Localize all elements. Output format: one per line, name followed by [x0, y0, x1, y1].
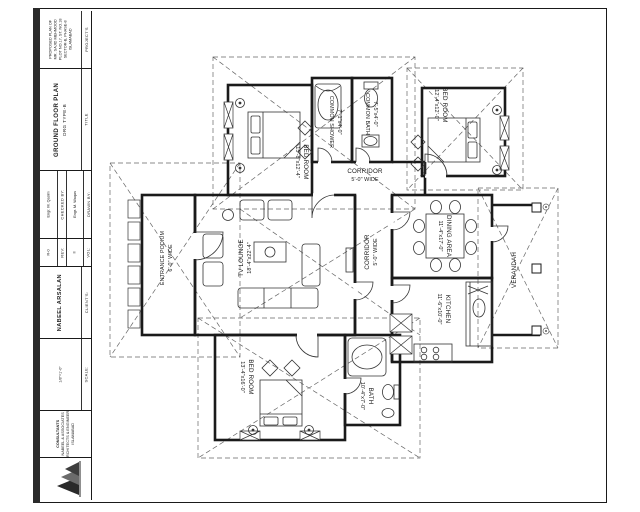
sink-basin	[382, 409, 394, 418]
room-label-entrance: ENTRANCE PODIUM	[160, 230, 166, 285]
pouf	[223, 210, 234, 221]
room-label-common-shower: COMMON SHOWER	[328, 96, 334, 148]
room-dims-corridor-mid: 5'-0" WIDE	[373, 238, 379, 266]
burner	[433, 347, 439, 353]
side-table-dot	[252, 429, 254, 431]
room-dims-tv-lounge: 18'-4"x22'-4"	[247, 242, 253, 273]
side-table-dot	[239, 167, 241, 169]
room-label-common-bath: COMMON BATH	[364, 93, 370, 135]
pillow	[468, 142, 477, 158]
door-common-shower	[318, 148, 332, 162]
sink-basin	[364, 137, 377, 146]
column	[532, 326, 541, 335]
chair	[450, 201, 461, 214]
shower-tray	[348, 338, 386, 376]
wc-bowl	[383, 385, 394, 400]
wall-tv-lounge	[195, 195, 355, 335]
room-dims-bath-bottom: 10'-4"x7'-0"	[359, 382, 365, 410]
door-entrance-main	[195, 232, 223, 260]
verandah-columns	[532, 203, 541, 335]
step	[128, 266, 140, 284]
room-dims-entrance: 6'-0" WIDE	[168, 244, 174, 272]
step	[128, 310, 140, 328]
decor-diamond-icon	[262, 360, 278, 376]
chair	[414, 220, 425, 233]
armchair	[240, 200, 264, 220]
armchair	[203, 262, 223, 286]
room-label-kitchen: KITCHEN	[444, 295, 451, 324]
sofa-corner	[302, 244, 320, 286]
wc-tank	[364, 82, 378, 89]
room-dims-corridor-top: 5'-0" WIDE	[351, 177, 379, 183]
room-dims-common-bath: 7'-5"x4'-0"	[372, 101, 378, 126]
pillow	[468, 122, 477, 138]
wall-corridor-mid	[355, 195, 392, 362]
step	[128, 200, 140, 218]
window-icon	[300, 431, 320, 440]
bed-detail	[260, 380, 302, 414]
roof-outline-top-left	[213, 57, 415, 209]
chair	[466, 220, 477, 233]
door-common-bath	[356, 148, 370, 162]
bed	[248, 112, 300, 158]
wall-common-bath	[352, 78, 392, 162]
door-dining	[392, 212, 410, 230]
floor-plan-svg: BED ROOM 15'-8"x12'-4" COMMON SHOWER 7'-…	[0, 0, 640, 512]
roof-corner-dot	[545, 330, 546, 331]
door-corridor-mid	[355, 282, 373, 300]
sofa	[238, 288, 318, 308]
armchair	[203, 234, 223, 258]
side-table-dot	[308, 429, 310, 431]
furniture-kitchen	[414, 282, 492, 362]
chair	[414, 242, 425, 255]
side-table-dot	[496, 169, 498, 171]
furniture-bed-top-right	[411, 106, 502, 175]
wc-tank	[394, 385, 399, 399]
bath-tub	[352, 345, 382, 369]
room-label-bed-top-right: BED ROOM	[441, 87, 448, 122]
column	[532, 264, 541, 273]
furniture-bed-bottom	[249, 360, 314, 435]
wall-bed-room-bottom	[215, 335, 345, 440]
pillow	[251, 116, 260, 133]
kitchen-sink	[473, 299, 485, 317]
room-dims-common-shower: 7'-1"x4'-0"	[336, 109, 342, 134]
step	[128, 222, 140, 240]
dining-table	[426, 214, 464, 258]
window-icon	[224, 102, 233, 128]
window-icon	[390, 336, 412, 354]
side-table-dot	[496, 109, 498, 111]
burner	[421, 347, 427, 353]
door-lounge-corridor	[312, 195, 335, 218]
room-label-tv-lounge: TV LOUNGE	[238, 239, 245, 277]
side-table-dot	[239, 102, 241, 104]
room-label-corridor-mid: CORRIDOR	[364, 234, 371, 270]
bed	[260, 380, 302, 426]
door-verandah	[492, 226, 508, 242]
furniture-dining	[414, 201, 477, 272]
chair	[450, 259, 461, 272]
room-label-bath-bottom: BATH	[367, 388, 374, 405]
step	[128, 288, 140, 306]
room-dims-bed-top-right: 12'-4"x12'-0"	[433, 89, 439, 120]
roof-corner-dot	[545, 206, 546, 207]
room-dims-bed-top-left: 15'-8"x12'-4"	[294, 146, 300, 177]
coffee-table	[254, 242, 286, 262]
room-label-bed-top-left: BED ROOM	[302, 144, 309, 179]
entrance-steps	[128, 200, 140, 328]
room-dims-dining: 11'-4"x17'-0"	[437, 220, 443, 251]
column	[532, 203, 541, 212]
pillow	[283, 417, 297, 425]
door-bed-room-bottom	[296, 335, 318, 357]
door-bath-bottom	[345, 378, 361, 394]
window-icon	[500, 116, 509, 140]
room-label-corridor-top: CORRIDOR	[347, 168, 383, 175]
roof-outline-verandah	[478, 188, 558, 348]
room-dims-kitchen: 11'-6"x10'-0"	[436, 293, 442, 324]
shower-tub	[318, 90, 338, 120]
roof-corner-markers	[543, 204, 549, 334]
door-kitchen	[392, 285, 410, 303]
room-label-verandah: VERANDAH	[511, 252, 518, 288]
wall-bed-room-top-left	[228, 85, 312, 195]
furniture-tv-lounge	[203, 200, 353, 308]
table-decor	[265, 247, 275, 257]
pillow	[251, 137, 260, 154]
sofa-seat-lines	[264, 288, 291, 308]
chair	[431, 259, 442, 272]
bed	[428, 118, 480, 162]
window-icon	[500, 146, 509, 170]
room-label-dining: DINING AREA	[445, 215, 452, 258]
chair	[466, 242, 477, 255]
room-dims-bed-bottom: 13'-4"x16'-0"	[239, 361, 245, 392]
room-label-bed-bottom: BED ROOM	[247, 359, 254, 394]
armchair	[268, 200, 292, 220]
chair	[431, 201, 442, 214]
burner	[433, 354, 439, 360]
step	[128, 244, 140, 262]
pillow	[264, 417, 278, 425]
window-icon	[224, 134, 233, 160]
burner	[421, 354, 427, 360]
window-icon	[390, 314, 412, 332]
